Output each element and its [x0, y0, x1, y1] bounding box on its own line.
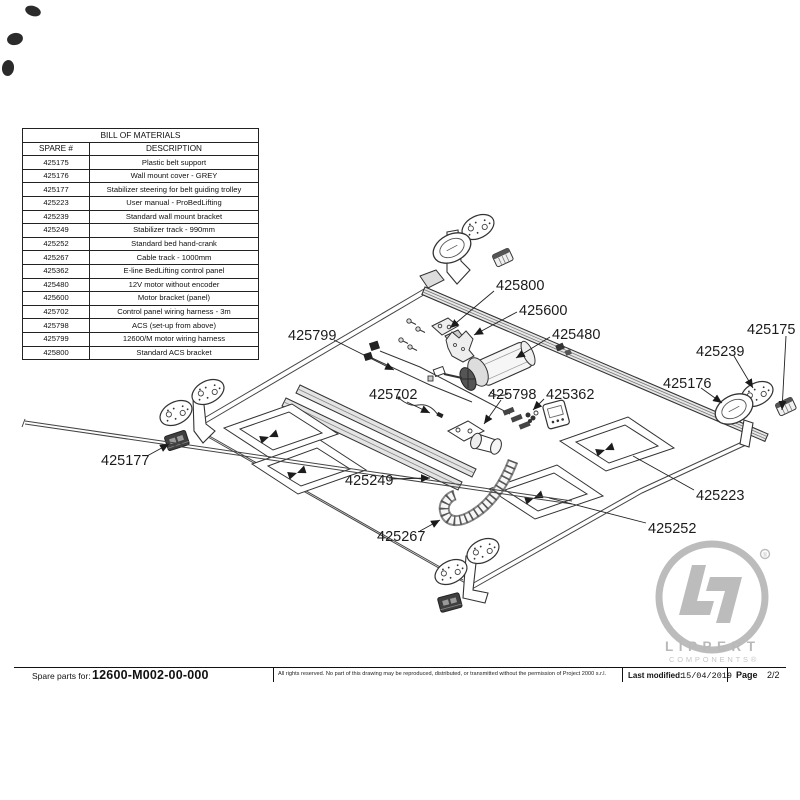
part-label-425249: 425249 [345, 473, 393, 489]
last-modified-date: 15/04/2019 [681, 671, 732, 681]
bom-row: 425175Plastic belt support [23, 156, 259, 170]
last-modified-label: Last modified: [628, 671, 683, 680]
bom-row: 425798ACS (set-up from above) [23, 319, 259, 333]
logo-brand-name: LIPPERT [665, 639, 761, 654]
bom-row: 425252Standard bed hand-crank [23, 237, 259, 251]
part-label-425223: 425223 [696, 488, 744, 504]
lippert-logo: ® LIPPERT COMPONENTS® [659, 544, 770, 664]
spare-parts-label: Spare parts for: [32, 671, 91, 681]
bom-row: 425223User manual - ProBedLifting [23, 196, 259, 210]
logo-ring [659, 544, 765, 650]
part-number: 12600-M002-00-000 [92, 668, 209, 682]
part-label-425798: 425798 [488, 387, 536, 403]
bom-row: 425267Cable track - 1000mm [23, 251, 259, 265]
part-label-425800: 425800 [496, 278, 544, 294]
bom-header-row: SPARE # DESCRIPTION [23, 142, 259, 156]
bill-of-materials-table: BILL OF MATERIALS SPARE # DESCRIPTION 42… [22, 128, 259, 360]
footer-divider [622, 667, 623, 682]
footer-divider [273, 667, 274, 682]
bom-row: 425176Wall mount cover - GREY [23, 169, 259, 183]
bom-row: 425362E-line BedLifting control panel [23, 264, 259, 278]
bom-row: 42579912600/M motor wiring harness [23, 332, 259, 346]
bom-row: 425249Stabilizer track - 990mm [23, 224, 259, 238]
part-label-425177: 425177 [101, 453, 149, 469]
left-end-assembly [156, 374, 228, 451]
bom-row: 42548012V motor without encoder [23, 278, 259, 292]
part-label-425362: 425362 [546, 387, 594, 403]
drawing-sheet: 425800 425600 425480 425799 425702 42579… [0, 0, 800, 800]
bom-row: 425600Motor bracket (panel) [23, 292, 259, 306]
part-label-425600: 425600 [519, 303, 567, 319]
page-label: Page [736, 670, 758, 680]
bom-col-spare: SPARE # [23, 142, 90, 156]
bom-title: BILL OF MATERIALS [23, 129, 259, 143]
copyright-text: All rights reserved. No part of this dra… [278, 671, 606, 677]
part-label-425480: 425480 [552, 327, 600, 343]
part-label-425176: 425176 [663, 376, 711, 392]
bom-row: 425702Control panel wiring harness - 3m [23, 305, 259, 319]
logo-registered-mark: ® [763, 552, 768, 559]
part-label-425702: 425702 [369, 387, 417, 403]
page-value: 2/2 [767, 670, 780, 680]
part-label-425252: 425252 [648, 521, 696, 537]
part-label-425239: 425239 [696, 344, 744, 360]
part-label-425175: 425175 [747, 322, 795, 338]
bom-row: 425800Standard ACS bracket [23, 346, 259, 360]
bom-title-row: BILL OF MATERIALS [23, 129, 259, 143]
part-label-425799: 425799 [288, 328, 336, 344]
bed-panel-3 [560, 417, 674, 471]
acs-unit [448, 421, 503, 456]
bom-row: 425177Stabilizer steering for belt guidi… [23, 183, 259, 197]
part-label-425267: 425267 [377, 529, 425, 545]
control-panel [526, 400, 570, 430]
bottom-corner-assembly [431, 533, 503, 612]
logo-c-glyph [706, 577, 742, 623]
bom-col-description: DESCRIPTION [90, 142, 259, 156]
logo-brand-subtitle: COMPONENTS® [669, 655, 759, 664]
corner-scan-marks [1, 4, 42, 77]
bom-row: 425239Standard wall mount bracket [23, 210, 259, 224]
top-wall-mount [428, 209, 514, 284]
